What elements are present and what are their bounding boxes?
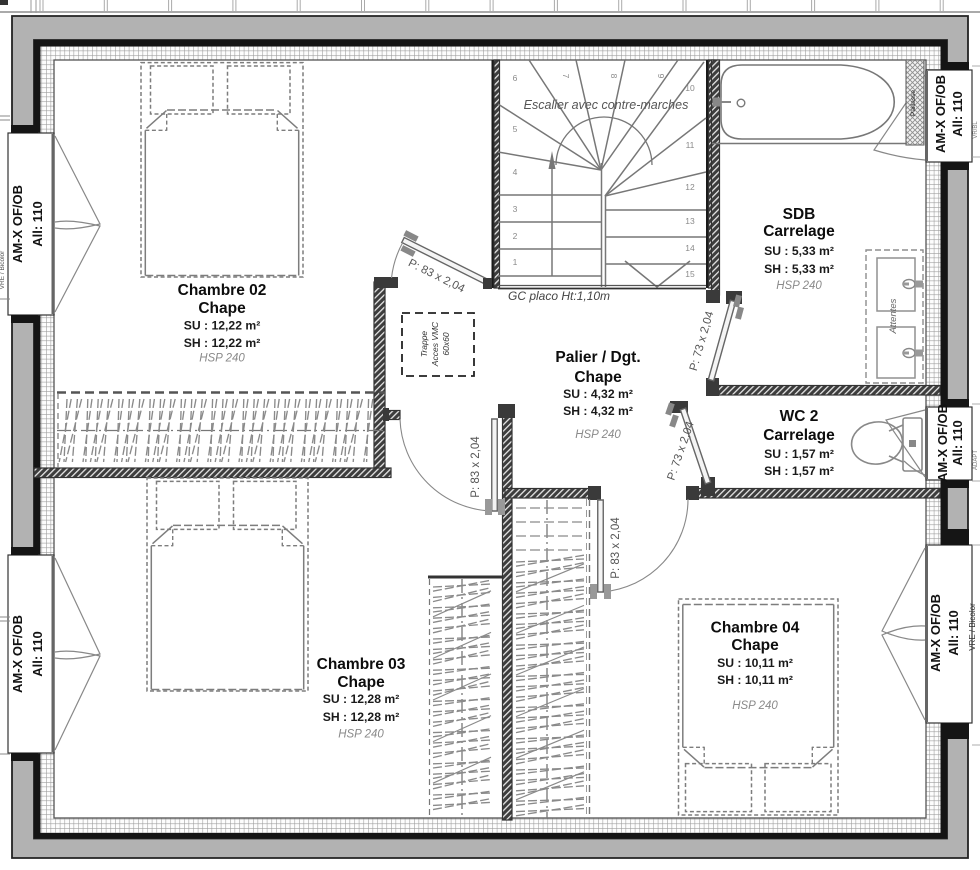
svg-text:12: 12 [685, 182, 695, 192]
svg-text:AM-X OF/OB: AM-X OF/OB [933, 75, 948, 153]
svg-text:SH : 12,28 m²: SH : 12,28 m² [323, 710, 400, 724]
svg-text:Paillasse: Paillasse [910, 90, 917, 116]
svg-text:6: 6 [513, 73, 518, 83]
svg-text:HSP 240: HSP 240 [776, 280, 822, 292]
svg-text:SU : 10,11 m²: SU : 10,11 m² [717, 656, 793, 670]
svg-text:All: 110: All: 110 [950, 420, 965, 466]
svg-text:AM-X OF/OB: AM-X OF/OB [935, 404, 950, 482]
svg-text:SU : 12,28 m²: SU : 12,28 m² [323, 692, 400, 706]
svg-text:SH : 12,22 m²: SH : 12,22 m² [184, 336, 261, 350]
svg-text:14: 14 [685, 243, 695, 253]
svg-text:Carrelage: Carrelage [763, 427, 835, 444]
svg-text:4: 4 [513, 167, 518, 177]
svg-text:3: 3 [513, 204, 518, 214]
svg-text:15: 15 [685, 269, 695, 279]
svg-text:1: 1 [513, 257, 518, 267]
svg-text:7: 7 [561, 74, 571, 79]
svg-text:All: 110: All: 110 [950, 91, 965, 137]
svg-text:VRE / Bicolor: VRE / Bicolor [0, 250, 6, 289]
svg-text:Chape: Chape [731, 637, 779, 654]
svg-text:11: 11 [686, 140, 695, 150]
svg-text:SH : 5,33 m²: SH : 5,33 m² [764, 262, 834, 276]
svg-text:Chambre 03: Chambre 03 [317, 656, 406, 673]
svg-text:5: 5 [513, 124, 518, 134]
svg-text:AM-X OF/OB: AM-X OF/OB [10, 615, 25, 693]
svg-text:VRE / Bicolor: VRE / Bicolor [968, 603, 977, 651]
svg-text:HSP 240: HSP 240 [199, 353, 245, 365]
svg-text:HSP 240: HSP 240 [575, 429, 621, 441]
svg-text:13: 13 [685, 216, 695, 226]
svg-text:8: 8 [609, 74, 619, 79]
svg-text:SH : 1,57 m²: SH : 1,57 m² [764, 464, 834, 478]
svg-text:All: 110: All: 110 [946, 610, 961, 656]
svg-text:10: 10 [685, 83, 695, 93]
svg-text:HSP 240: HSP 240 [338, 729, 384, 741]
svg-text:9: 9 [656, 74, 666, 79]
svg-text:Chape: Chape [574, 369, 622, 386]
svg-text:All: 110: All: 110 [30, 631, 45, 677]
svg-text:Trappe: Trappe [419, 331, 429, 358]
svg-text:Chape: Chape [337, 674, 385, 691]
svg-text:SU : 1,57 m²: SU : 1,57 m² [764, 447, 834, 461]
svg-text:Escalier avec contre-marches: Escalier avec contre-marches [524, 98, 689, 112]
svg-text:P: 83 x 2,04: P: 83 x 2,04 [610, 517, 622, 579]
svg-text:SDB: SDB [783, 206, 816, 223]
svg-text:SU : 12,22 m²: SU : 12,22 m² [184, 319, 261, 333]
svg-text:Chambre 02: Chambre 02 [178, 282, 267, 299]
svg-text:AM-X OF/OB: AM-X OF/OB [10, 185, 25, 263]
svg-text:AM-X OF/OB: AM-X OF/OB [928, 594, 943, 672]
svg-text:Attentes: Attentes [888, 298, 899, 334]
svg-text:SH : 10,11 m²: SH : 10,11 m² [717, 673, 793, 687]
svg-text:SH : 4,32 m²: SH : 4,32 m² [563, 404, 633, 418]
svg-text:Carrelage: Carrelage [763, 223, 835, 240]
svg-text:2: 2 [513, 231, 518, 241]
svg-text:VR/BL: VR/BL [973, 121, 979, 139]
svg-text:WC 2: WC 2 [780, 408, 819, 425]
svg-text:Palier / Dgt.: Palier / Dgt. [555, 349, 640, 366]
svg-text:GC placo Ht:1,10m: GC placo Ht:1,10m [508, 289, 610, 303]
svg-text:All: 110: All: 110 [30, 201, 45, 247]
svg-text:ADAPT: ADAPT [973, 450, 979, 470]
svg-text:Chape: Chape [198, 300, 246, 317]
svg-text:SU : 5,33 m²: SU : 5,33 m² [764, 244, 834, 258]
svg-text:Chambre 04: Chambre 04 [711, 620, 800, 637]
svg-text:P: 83 x 2,04: P: 83 x 2,04 [470, 436, 482, 498]
svg-text:SU : 4,32 m²: SU : 4,32 m² [563, 387, 633, 401]
svg-text:60x60: 60x60 [441, 332, 451, 355]
svg-text:HSP 240: HSP 240 [732, 700, 778, 712]
svg-text:Acces VMC: Acces VMC [430, 321, 440, 367]
